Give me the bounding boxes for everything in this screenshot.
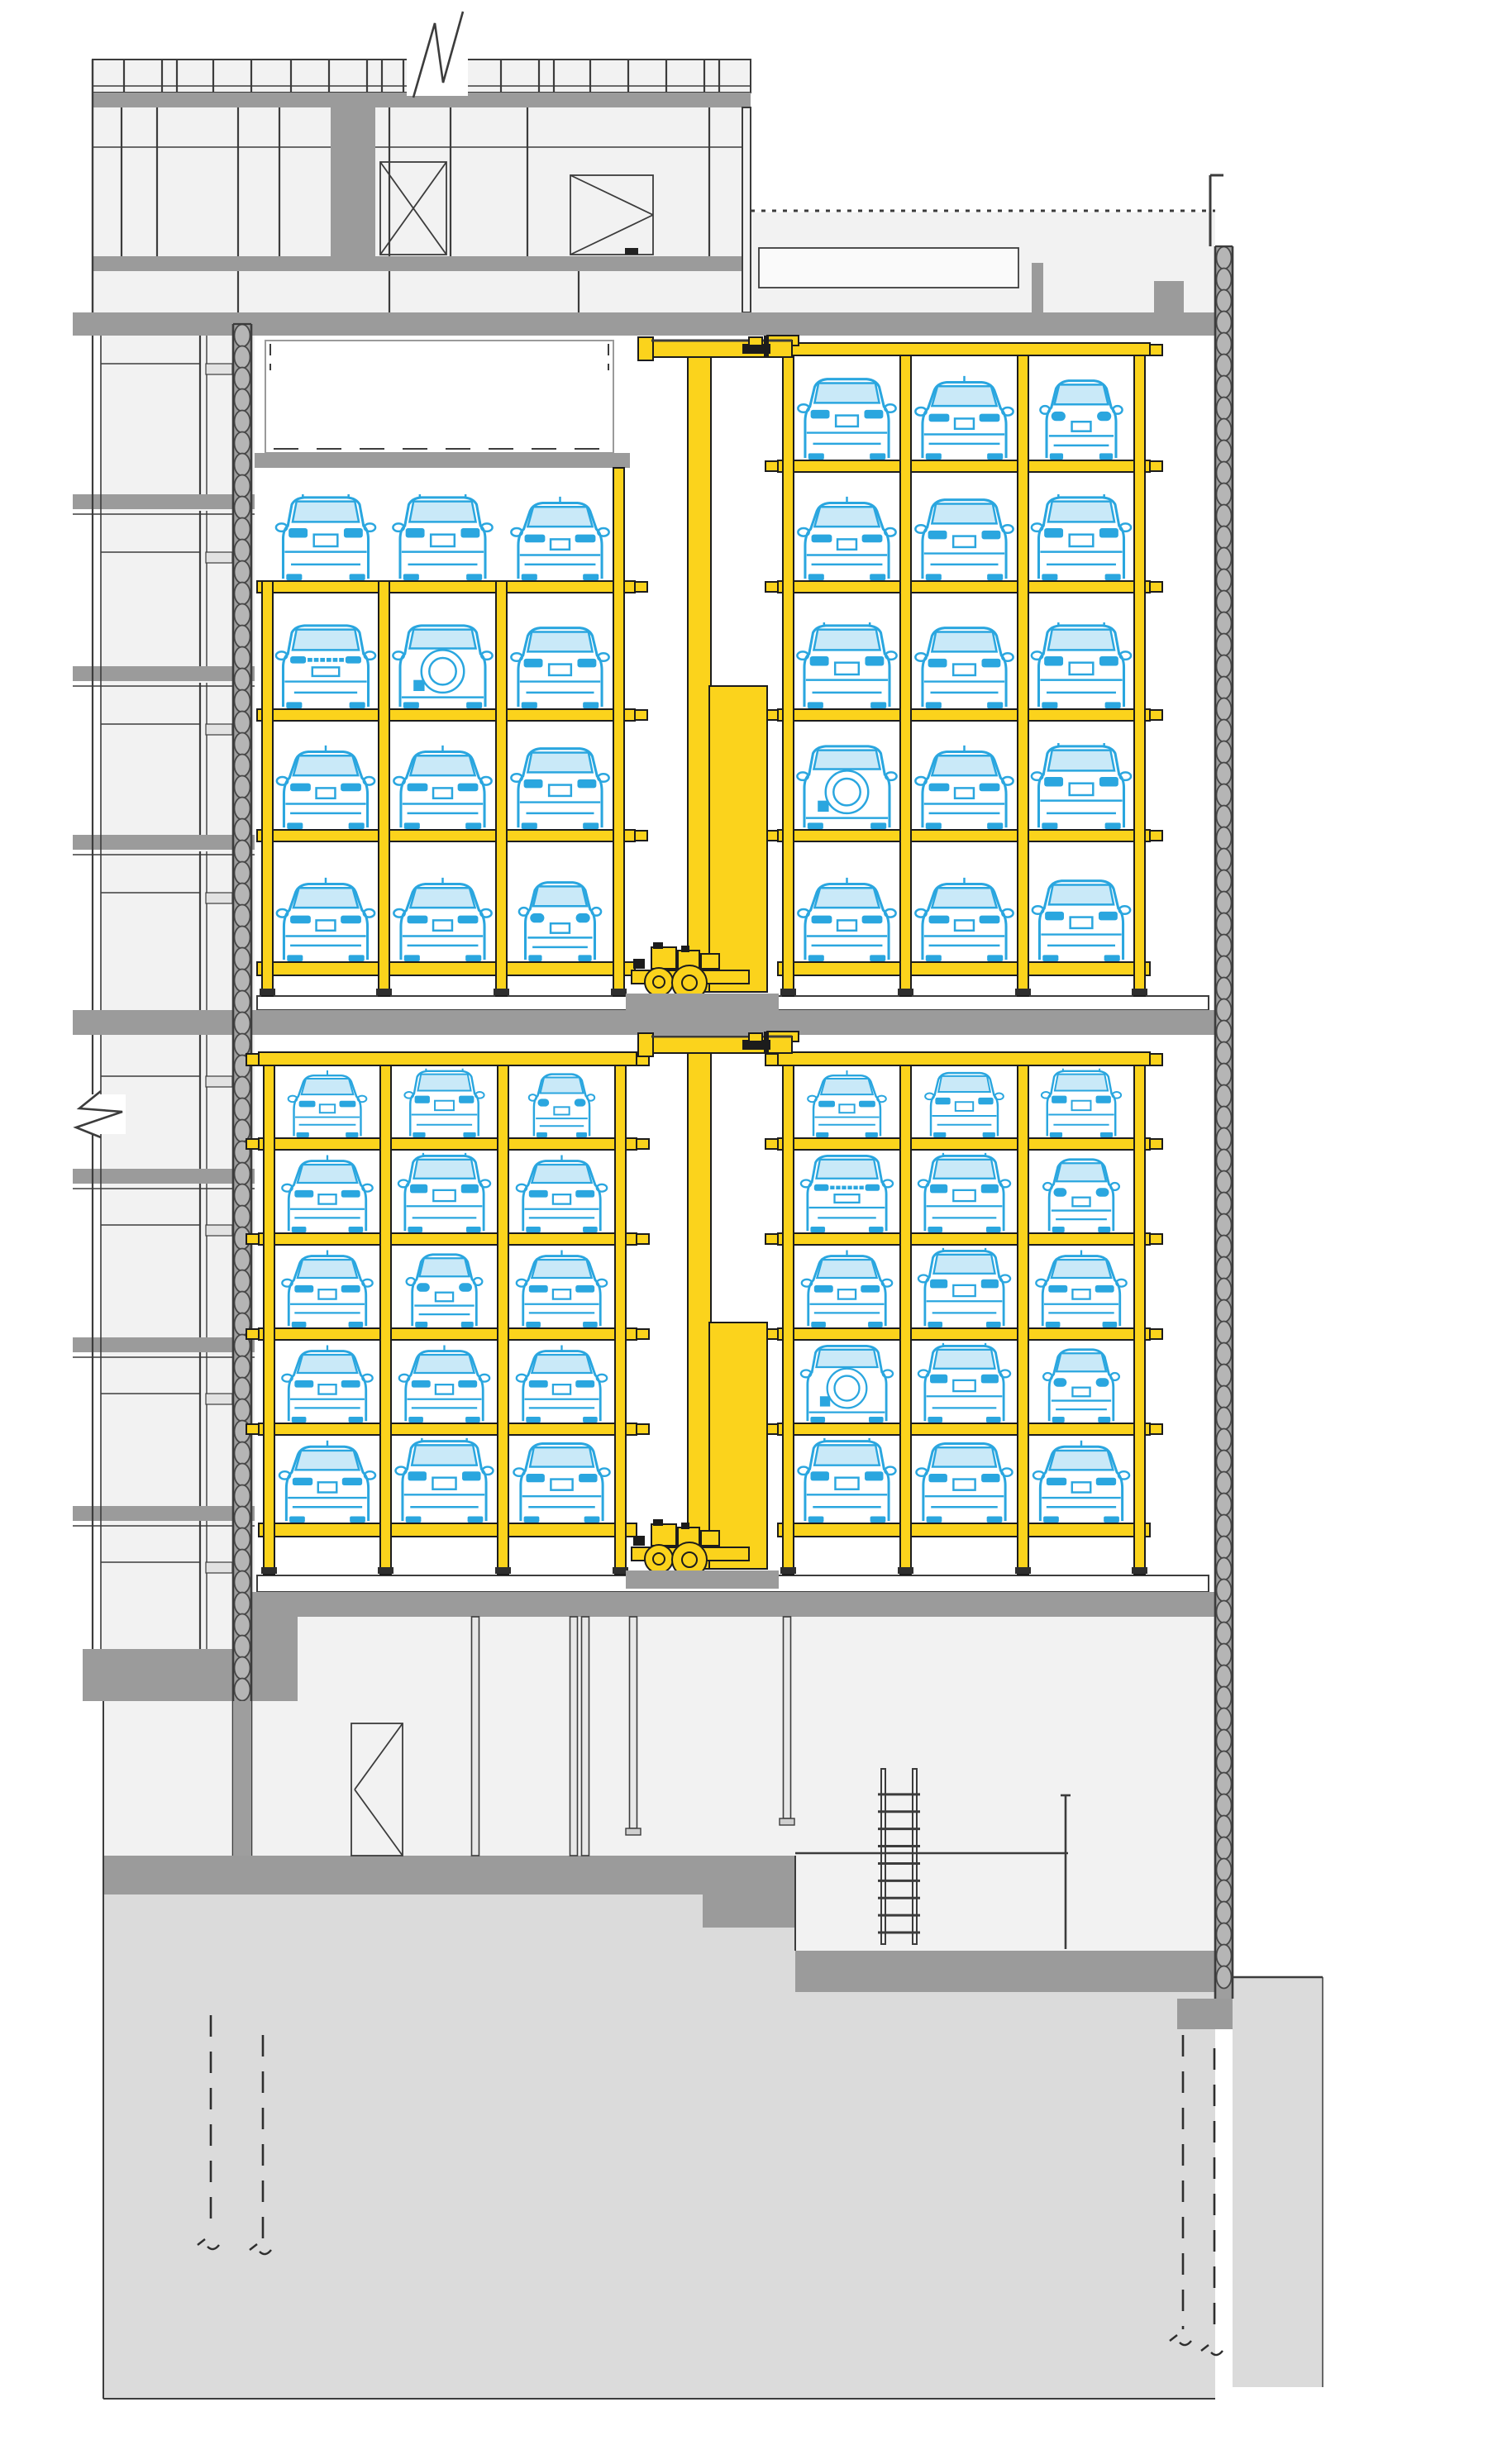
pile-circle <box>1217 849 1232 871</box>
pile-circle <box>1217 956 1232 979</box>
rack-shelf-stub <box>765 1234 778 1244</box>
pile-circle <box>1217 1365 1232 1387</box>
lift-plinth <box>626 1570 779 1589</box>
basement-pier <box>472 1617 479 1856</box>
roof-terrace <box>751 175 1223 312</box>
pile-circle <box>1217 1451 1232 1473</box>
rack-shelf-stub <box>635 831 647 841</box>
lift-shaft-opening <box>265 341 613 453</box>
soil-mass <box>795 1992 1215 2399</box>
pile-circle <box>235 346 250 369</box>
pile-circle <box>1217 1322 1232 1344</box>
rack-post-foot <box>1015 989 1031 995</box>
car-wagon <box>915 500 1013 580</box>
rack-post <box>1134 355 1145 996</box>
rooftop-storey <box>93 60 751 312</box>
car-suv <box>918 1343 1010 1423</box>
pile-circle <box>1217 999 1232 1022</box>
pile-circle <box>1217 290 1232 312</box>
car-suvfront <box>276 626 375 708</box>
rooftop-core-wall <box>331 107 375 256</box>
pile-circle <box>1217 1537 1232 1559</box>
rack-top-rail <box>778 1052 1150 1065</box>
rack-post-foot <box>378 1567 393 1574</box>
rack-shelf-stub <box>1150 831 1162 841</box>
pile-circle <box>1217 1472 1232 1494</box>
lift-hook-pin <box>764 336 769 357</box>
lift-pit <box>795 1856 1215 1951</box>
pile-circle <box>1217 677 1232 699</box>
pile-circle <box>1217 1730 1232 1752</box>
pile-circle <box>1217 1794 1232 1817</box>
pile-circle <box>235 518 250 541</box>
lift-trolley-beam <box>651 1037 792 1053</box>
pile-circle <box>235 1485 250 1508</box>
pile-circle <box>1217 1966 1232 1989</box>
soil-mass <box>703 1928 795 2399</box>
pile-circle <box>1217 1837 1232 1860</box>
architectural-section-drawing <box>0 0 1488 2464</box>
window-sill <box>206 724 232 735</box>
pile-circle <box>1217 269 1232 291</box>
pile-circle <box>1217 1601 1232 1623</box>
rack-post <box>1018 355 1028 996</box>
rack-shelf <box>778 1138 1150 1150</box>
pile-circle <box>1217 462 1232 484</box>
pile-circle <box>1217 1558 1232 1580</box>
pile-circle <box>1217 1128 1232 1151</box>
pile-circle <box>235 540 250 562</box>
pile-circle <box>235 841 250 863</box>
pile-circle <box>235 475 250 498</box>
lift-motor-box <box>701 954 719 969</box>
window-sill <box>206 1225 232 1236</box>
pile-circle <box>235 1528 250 1551</box>
rack-post <box>783 1065 794 1575</box>
rack-post <box>783 355 794 996</box>
pile-circle <box>1217 1021 1232 1043</box>
pile-circle <box>1217 892 1232 914</box>
rack-shelf-stub <box>637 1234 649 1244</box>
pile-circle <box>1217 1859 1232 1881</box>
rack-post <box>1134 1065 1145 1575</box>
pile-circle <box>1217 1751 1232 1774</box>
pile-circle <box>235 604 250 627</box>
car-wagon <box>798 379 895 460</box>
pile-circle <box>1217 1902 1232 1924</box>
pile-circle <box>1217 505 1232 527</box>
rack-shelf-stub <box>1150 1424 1162 1434</box>
pile-circle <box>235 1378 250 1400</box>
car-spare <box>801 1346 893 1423</box>
rack-post-foot <box>611 989 627 995</box>
pile-circle <box>235 1206 250 1228</box>
lift-motor-box <box>701 1531 719 1546</box>
car-suv <box>1032 494 1131 580</box>
pile-circle <box>235 1571 250 1594</box>
pier-foot <box>626 1828 641 1835</box>
break-cover <box>407 8 468 96</box>
pile-circle <box>235 1657 250 1680</box>
pile-circle <box>1217 1816 1232 1838</box>
rack-post <box>1018 1065 1028 1575</box>
basement-floor-slab <box>103 1856 795 1894</box>
rack-post <box>900 1065 911 1575</box>
rooftop-right-wall <box>742 107 751 312</box>
rack-shelf-stub <box>1150 710 1162 720</box>
basement-floor-step <box>703 1894 795 1928</box>
terrace-wall-stub <box>1032 263 1043 312</box>
basement-pier <box>570 1617 578 1856</box>
pile-circle <box>235 1679 250 1701</box>
pile-circle <box>1217 570 1232 592</box>
facade-floor-slab <box>73 835 255 850</box>
pile-circle <box>235 497 250 519</box>
pile-circle <box>235 389 250 412</box>
pile-circle <box>1217 870 1232 893</box>
car-suv <box>398 1153 490 1232</box>
car-wagon <box>1033 881 1130 961</box>
pile-circle <box>1217 806 1232 828</box>
car-wagon <box>513 1443 609 1523</box>
pile-circle <box>1217 312 1232 334</box>
pile-circle <box>1217 698 1232 721</box>
rack-post-foot <box>261 1567 277 1574</box>
rack-shelf-stub <box>635 710 647 720</box>
pile-circle <box>235 1099 250 1121</box>
pile-circle <box>235 1614 250 1637</box>
lift-mast <box>688 357 711 992</box>
rack-shelf-stub <box>637 1424 649 1434</box>
rack-lower-right <box>765 1052 1162 1575</box>
pile-circle <box>235 647 250 670</box>
car-suv <box>1032 743 1131 829</box>
lift-plinth <box>626 994 779 1010</box>
rack-shelf-stub <box>637 1329 649 1339</box>
pile-circle <box>1217 548 1232 570</box>
rack-bottom-rail <box>778 962 1150 975</box>
car-spare <box>393 626 492 708</box>
rack-post <box>379 581 389 996</box>
rack-upper-right <box>765 343 1162 996</box>
window-sill <box>206 1076 232 1087</box>
basement-room <box>296 1617 1215 1856</box>
pile-circle <box>1217 1408 1232 1430</box>
pile-circle <box>1217 1214 1232 1237</box>
pit-floor-slab <box>795 1951 1215 1992</box>
car-wagon <box>916 1443 1012 1523</box>
machinery-block <box>633 959 645 969</box>
rack-shelf-stub <box>637 1139 649 1149</box>
facade-floor-slab <box>73 494 255 509</box>
pile-circle <box>235 561 250 584</box>
pile-circle <box>235 1550 250 1572</box>
parking-section-canvas <box>0 0 1488 2464</box>
pile-circle <box>1217 1042 1232 1065</box>
car-suv <box>396 1438 494 1523</box>
rack-shelf <box>257 581 635 593</box>
rack-post <box>262 581 273 996</box>
pile-circle <box>235 927 250 949</box>
rack-shelf-stub <box>765 1139 778 1149</box>
pile-circle <box>235 1163 250 1185</box>
rack-shelf <box>257 709 635 721</box>
lift-motor-box <box>651 947 676 969</box>
rack-post-foot <box>898 989 913 995</box>
pile-circle <box>1217 913 1232 936</box>
pier-foot <box>780 1818 794 1825</box>
rack-shelf <box>778 1233 1150 1245</box>
pile-circle <box>1217 247 1232 269</box>
soil-mass <box>103 1894 795 2399</box>
pile-circle <box>1217 720 1232 742</box>
rack-shelf <box>259 1423 637 1435</box>
rack-shelf-stub <box>246 1329 259 1339</box>
door-threshold <box>625 248 638 255</box>
pile-circle <box>1217 1150 1232 1172</box>
rack-top-rail <box>778 343 1150 355</box>
window-sill <box>206 1562 232 1573</box>
rack-shelf-stub <box>246 1424 259 1434</box>
pile-circle <box>1217 1666 1232 1688</box>
car-wagon <box>915 628 1013 708</box>
pile-circle <box>235 819 250 841</box>
pile-circle <box>235 583 250 605</box>
pile-circle <box>1217 1923 1232 1946</box>
pile-circle <box>1217 1644 1232 1666</box>
pile-circle <box>235 1356 250 1379</box>
car-suv <box>1032 622 1131 708</box>
rack-shelf <box>259 1138 637 1150</box>
rack-shelf-stub <box>635 582 647 592</box>
pile-circle <box>1217 612 1232 635</box>
pile-circle <box>1217 419 1232 441</box>
rack-post-foot <box>780 989 796 995</box>
machinery-block <box>633 1536 645 1546</box>
pile-circle <box>1217 484 1232 506</box>
pile-circle <box>1217 1343 1232 1365</box>
rack-post-foot <box>1132 1567 1147 1574</box>
rack-shelf <box>778 1328 1150 1340</box>
pile-circle <box>1217 527 1232 549</box>
pile-circle <box>1217 398 1232 420</box>
pile-circle <box>1217 591 1232 613</box>
pile-circle <box>235 690 250 713</box>
pile-circle <box>235 1013 250 1035</box>
car-suv <box>918 1248 1010 1327</box>
pile-circle <box>235 1270 250 1293</box>
pile-circle <box>1217 978 1232 1000</box>
rack-shelf-stub <box>1150 461 1162 471</box>
pile-circle <box>1217 1580 1232 1602</box>
pile-circle <box>235 411 250 433</box>
pile-circle <box>235 1593 250 1615</box>
car-wagon <box>925 1073 1004 1137</box>
car-wagon <box>511 749 608 829</box>
rooftop-mid-slab <box>93 256 751 271</box>
machinery-cap <box>681 1523 689 1529</box>
pile-circle <box>235 970 250 992</box>
lift-hook-pad <box>749 337 762 346</box>
pile-circle <box>235 1464 250 1486</box>
pile-circle <box>1217 1709 1232 1731</box>
pile-circle <box>235 755 250 777</box>
pile-circle <box>1217 1880 1232 1903</box>
pile-circle <box>235 626 250 648</box>
car-suv <box>797 622 896 708</box>
pile-circle <box>235 1442 250 1465</box>
car-suv <box>393 494 492 580</box>
rack-post <box>264 1065 274 1575</box>
rack-lower-left <box>246 1052 649 1575</box>
lift-drive-wheel <box>645 1545 673 1573</box>
lift-trolley-beam <box>651 341 792 357</box>
rack-shelf <box>778 709 1150 721</box>
pile-circle <box>235 1636 250 1658</box>
terrace-plinth-block <box>1154 281 1184 312</box>
lift-hook-pin <box>764 1032 769 1053</box>
car-wagon <box>511 628 608 708</box>
rack-shelf <box>778 581 1150 593</box>
pile-circle <box>1217 784 1232 807</box>
pile-circle <box>235 669 250 691</box>
pile-circle <box>1217 376 1232 398</box>
machinery-cap <box>681 946 689 952</box>
pile-circle <box>235 1507 250 1529</box>
basement-left-room <box>103 1701 296 1856</box>
pile-circle <box>1217 1193 1232 1215</box>
rack-shelf-stub <box>246 1139 259 1149</box>
pile-circle <box>1217 1945 1232 1967</box>
rack-top-concrete-beam <box>255 453 630 468</box>
rack-post <box>380 1065 391 1575</box>
pile-circle <box>235 905 250 927</box>
basement-pier <box>784 1617 791 1818</box>
facade-floor-slab <box>73 1337 255 1352</box>
pile-circle <box>1217 1064 1232 1086</box>
window-sill <box>206 1394 232 1404</box>
pile-circle <box>1217 1171 1232 1194</box>
pile-circle <box>235 1077 250 1099</box>
rack-shelf <box>778 1423 1150 1435</box>
pile-circle <box>235 1399 250 1422</box>
rack-rail-stub <box>1150 345 1162 355</box>
rack-post-foot <box>495 1567 511 1574</box>
car-suvfront <box>801 1156 893 1232</box>
pile-circle <box>1217 1386 1232 1408</box>
pile-circle <box>235 862 250 884</box>
pile-circle <box>1217 763 1232 785</box>
rack-shelf-stub <box>765 461 778 471</box>
window-sill <box>206 364 232 374</box>
pile-circle <box>235 432 250 455</box>
facade-floor-slab <box>73 1169 255 1184</box>
basement-pier <box>582 1617 589 1856</box>
pile-wall-solid <box>233 1701 251 1856</box>
window-sill <box>206 552 232 563</box>
pile-circle <box>1217 827 1232 850</box>
basement-pier <box>630 1617 637 1828</box>
lift-beam-end-cap <box>638 337 653 360</box>
pile-circle <box>1217 634 1232 656</box>
car-suv <box>276 494 375 580</box>
rack-rail-stub <box>1150 1054 1162 1065</box>
pile-circle <box>1217 1687 1232 1709</box>
rack-shelf-stub <box>1150 1234 1162 1244</box>
rack-post-foot <box>780 1567 796 1574</box>
rack-post-foot <box>494 989 509 995</box>
pile-circle <box>235 1034 250 1056</box>
machinery-cap <box>653 942 663 949</box>
rack-post <box>900 355 911 996</box>
pile-circle <box>235 776 250 798</box>
pile-circle <box>1217 1429 1232 1451</box>
pile-circle <box>1217 1236 1232 1258</box>
pile-circle <box>1217 741 1232 764</box>
lift-beam-end-cap <box>638 1033 653 1056</box>
pile-circle <box>235 1292 250 1314</box>
lift-mast <box>688 1053 711 1569</box>
rack-rail-stub <box>246 1054 259 1065</box>
rack-post <box>496 581 507 996</box>
pile-circle <box>1217 1085 1232 1108</box>
rack-shelf <box>259 1233 637 1245</box>
terrace-skylight-curb <box>759 248 1018 288</box>
pile-circle <box>235 1249 250 1271</box>
rack-shelf <box>257 830 635 841</box>
facade-floor-slab <box>73 666 255 681</box>
pile-circle <box>1217 1279 1232 1301</box>
lift-hook-pad <box>749 1033 762 1041</box>
pile-circle <box>1217 355 1232 377</box>
rack-bottom-rail <box>257 962 635 975</box>
pile-circle <box>1217 1515 1232 1537</box>
rack-shelf-stub <box>1150 1139 1162 1149</box>
hall-floor-slab <box>251 1617 298 1701</box>
window-sill <box>206 893 232 903</box>
rack-upper-left <box>255 341 647 996</box>
car-suv <box>1042 1069 1121 1137</box>
pile-circle <box>235 733 250 755</box>
rack-post <box>615 1065 626 1575</box>
rack-bottom-rail <box>778 1523 1150 1537</box>
pile-circle <box>1217 655 1232 678</box>
pile-circle <box>1217 935 1232 957</box>
rack-post <box>613 468 624 996</box>
lift-motor-box <box>651 1524 676 1546</box>
machinery-cap <box>653 1519 663 1526</box>
pile-circle <box>235 325 250 347</box>
rack-shelf-stub <box>765 582 778 592</box>
car-suv <box>404 1069 484 1137</box>
rack-post-foot <box>1132 989 1147 995</box>
soil-mass-outside <box>1233 1977 1323 2387</box>
rack-post-foot <box>376 989 392 995</box>
facade-floor-slab <box>73 1506 255 1521</box>
rack-post <box>498 1065 508 1575</box>
pile-circle <box>235 1184 250 1207</box>
lift-carriage <box>709 686 767 992</box>
hall-floor-slab <box>233 1592 1215 1617</box>
left-pile-wall <box>233 324 251 1856</box>
facade-body <box>101 322 255 1649</box>
pile-circle <box>1217 1494 1232 1516</box>
rack-post-foot <box>1015 1567 1031 1574</box>
car-suv <box>799 1438 896 1523</box>
pile-circle <box>1217 1773 1232 1795</box>
rack-shelf <box>259 1328 637 1340</box>
pile-circle <box>1217 1300 1232 1323</box>
